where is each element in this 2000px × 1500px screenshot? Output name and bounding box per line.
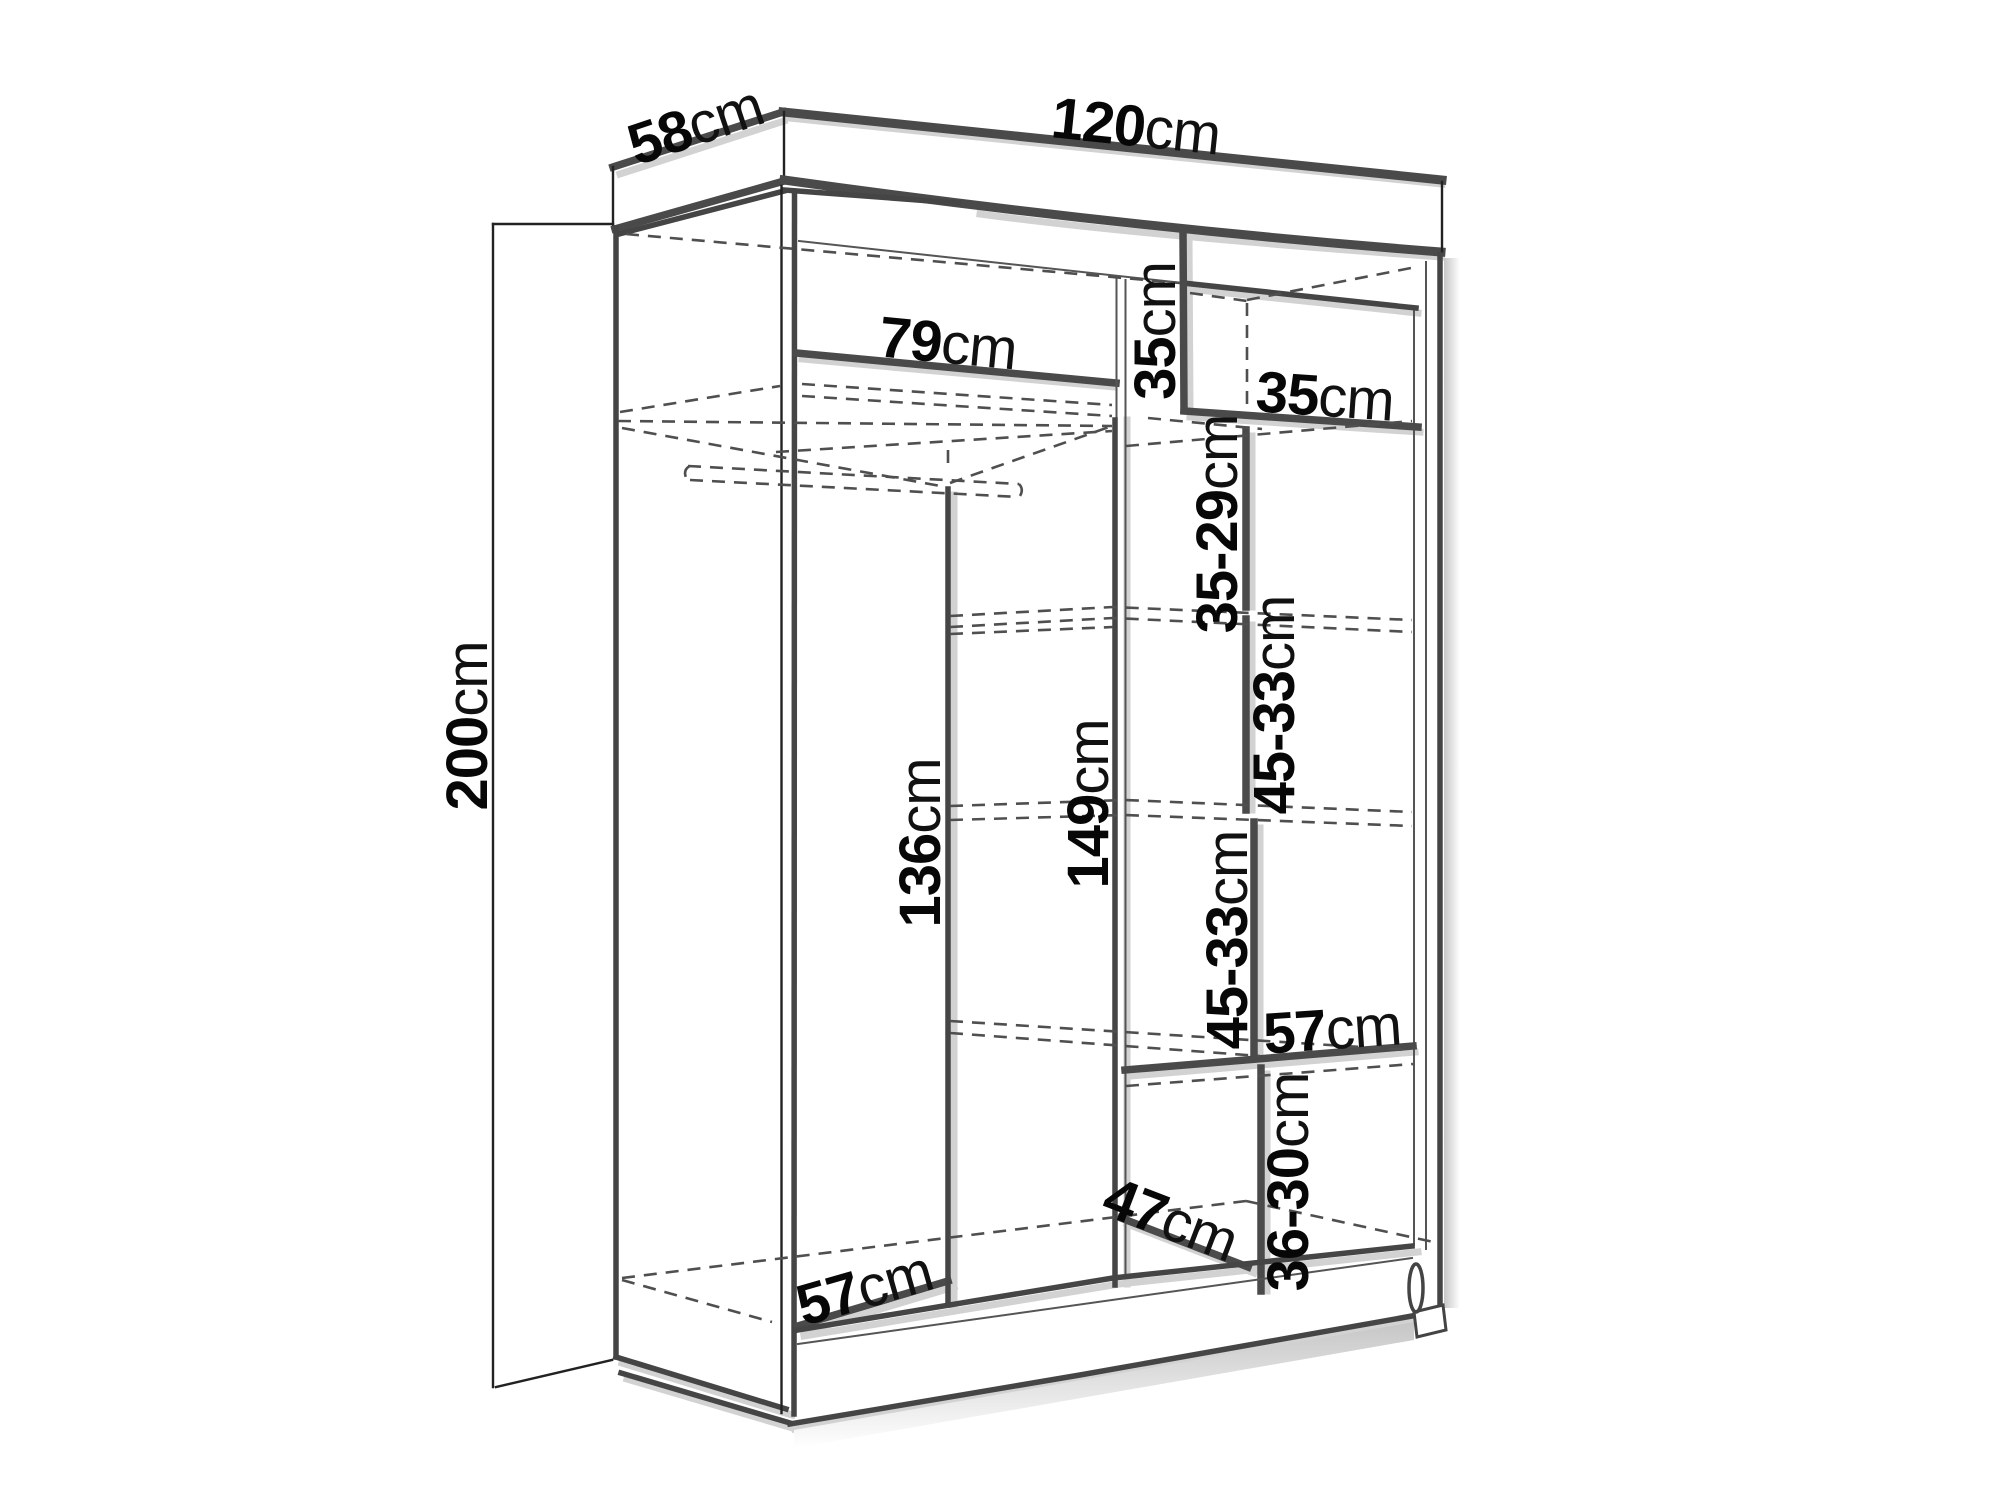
svg-text:36-30cm: 36-30cm: [1256, 1073, 1321, 1292]
svg-text:35cm: 35cm: [1254, 359, 1396, 433]
svg-text:35-29cm: 35-29cm: [1185, 415, 1250, 634]
svg-text:79cm: 79cm: [876, 305, 1019, 383]
svg-text:149cm: 149cm: [1056, 719, 1121, 888]
svg-text:45-33cm: 45-33cm: [1242, 596, 1307, 815]
svg-text:200cm: 200cm: [435, 641, 500, 810]
svg-text:57cm: 57cm: [1261, 992, 1403, 1066]
svg-text:136cm: 136cm: [888, 758, 953, 927]
svg-text:45-33cm: 45-33cm: [1195, 831, 1260, 1050]
svg-text:35cm: 35cm: [1123, 262, 1188, 400]
